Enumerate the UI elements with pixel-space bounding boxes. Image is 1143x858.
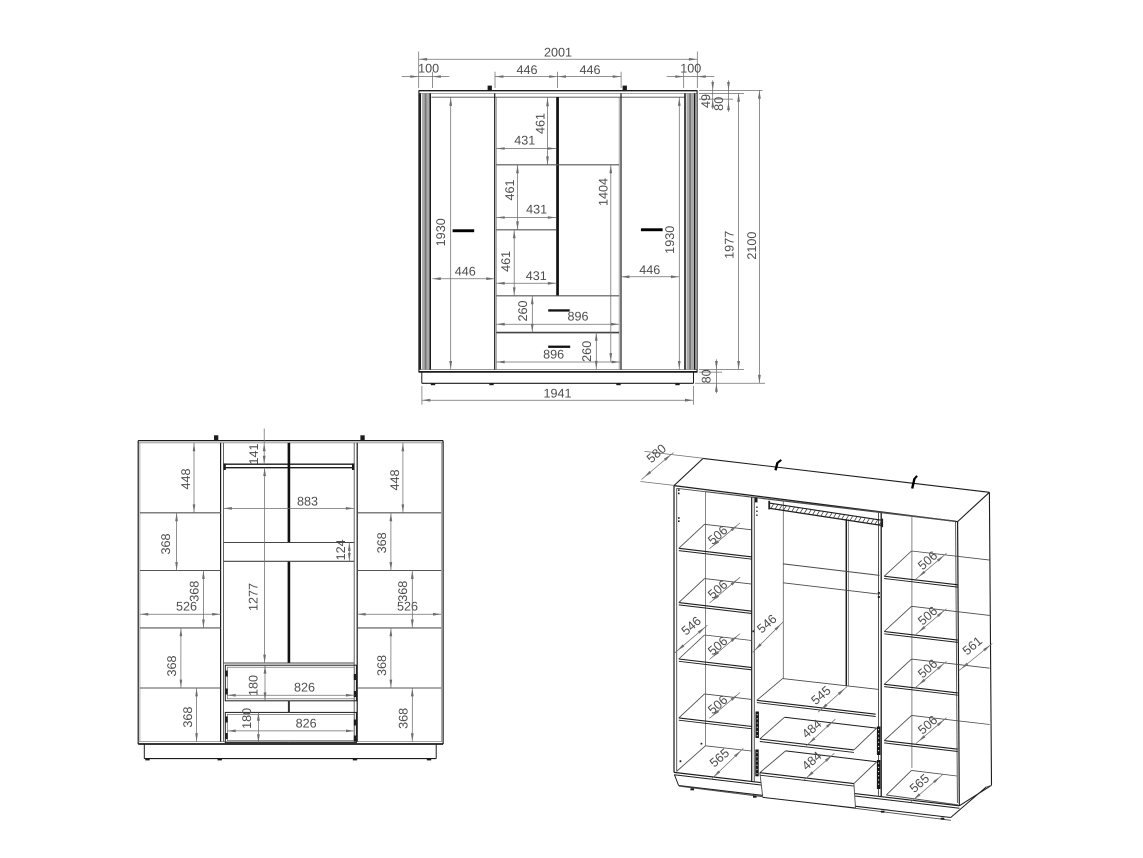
svg-text:260: 260 [580,341,594,362]
svg-text:124: 124 [334,539,348,560]
svg-text:826: 826 [294,681,315,695]
svg-text:368: 368 [181,707,195,728]
svg-text:431: 431 [514,134,535,148]
svg-text:896: 896 [543,347,564,361]
svg-text:431: 431 [526,269,547,283]
svg-text:141: 141 [247,443,261,464]
svg-text:1930: 1930 [434,218,448,246]
svg-text:1930: 1930 [663,226,677,254]
svg-text:2001: 2001 [544,45,572,59]
svg-text:80: 80 [712,97,726,111]
svg-text:260: 260 [516,300,530,321]
svg-text:368: 368 [375,532,389,553]
svg-text:49: 49 [699,94,713,108]
svg-text:368: 368 [187,581,201,602]
svg-text:368: 368 [159,533,173,554]
svg-text:461: 461 [499,251,513,272]
svg-text:431: 431 [526,203,547,217]
svg-text:100: 100 [680,62,701,76]
svg-text:368: 368 [165,655,179,676]
svg-text:446: 446 [455,265,476,279]
svg-text:1404: 1404 [596,178,610,206]
svg-text:2100: 2100 [745,232,759,260]
svg-text:368: 368 [396,581,410,602]
svg-text:883: 883 [297,494,318,508]
svg-text:1277: 1277 [246,583,260,611]
svg-text:461: 461 [534,113,548,134]
svg-text:826: 826 [296,717,317,731]
svg-text:368: 368 [375,655,389,676]
svg-text:446: 446 [579,63,600,77]
svg-text:1941: 1941 [543,386,571,400]
svg-text:80: 80 [699,369,713,383]
svg-text:180: 180 [247,675,261,696]
svg-text:368: 368 [397,708,411,729]
svg-text:180: 180 [240,708,254,729]
svg-text:448: 448 [388,469,402,490]
svg-text:896: 896 [567,310,588,324]
svg-text:461: 461 [503,179,517,200]
svg-text:446: 446 [516,63,537,77]
svg-text:446: 446 [639,263,660,277]
svg-text:100: 100 [418,62,439,76]
svg-text:1977: 1977 [723,231,737,259]
svg-text:448: 448 [179,468,193,489]
